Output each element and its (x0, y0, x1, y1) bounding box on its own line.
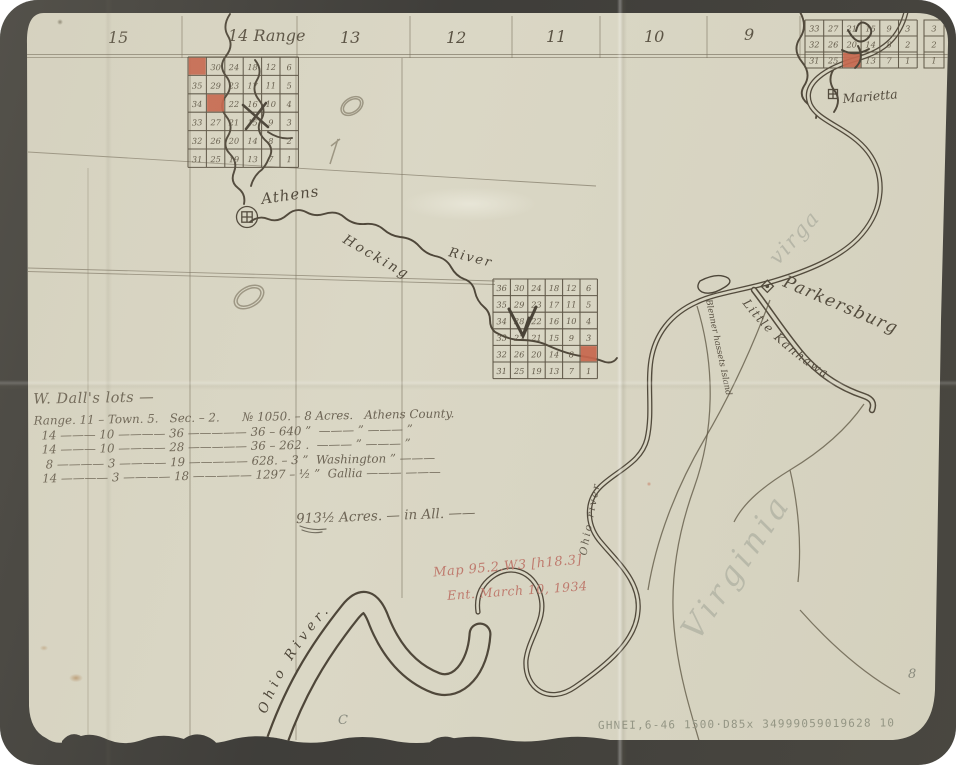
section-number: 8 (569, 349, 574, 359)
section-number: 23 (228, 81, 240, 91)
section-number: 21 (845, 23, 857, 33)
red-marked-section (207, 95, 224, 112)
section-number: 7 (886, 56, 892, 66)
section-number: 2 (285, 136, 292, 146)
section-number: 31 (809, 55, 820, 65)
section-number: 9 (886, 24, 891, 34)
section-number: 6 (586, 283, 592, 293)
section-number: 20 (845, 39, 857, 49)
section-number: 4 (585, 316, 592, 326)
section-number: 33 (496, 333, 507, 343)
section-number: 32 (809, 39, 820, 49)
section-number: 10 (266, 99, 276, 109)
section-number: 2 (904, 39, 911, 49)
section-number: 26 (827, 39, 839, 49)
section-number: 1 (905, 55, 911, 65)
range-label-10: 10 (644, 27, 664, 46)
section-number: 16 (247, 99, 258, 109)
section-number: 30 (210, 62, 221, 72)
section-number: 12 (266, 62, 276, 72)
section-number: 14 (865, 39, 876, 49)
section-number: 34 (496, 316, 507, 326)
section-number: 34 (192, 99, 203, 109)
section-number: 14 (247, 136, 258, 146)
section-number: 1 (931, 56, 936, 66)
section-number: 19 (229, 154, 240, 164)
c-pencil-mark: C (338, 713, 348, 728)
section-number: 19 (531, 366, 542, 376)
section-number: 18 (247, 62, 258, 72)
section-number: 15 (549, 333, 560, 343)
range-label-15: 15 (108, 28, 128, 47)
section-number: 20 (228, 136, 240, 146)
section-number: 27 (827, 23, 839, 33)
section-number: 18 (549, 283, 560, 293)
section-number: 7 (268, 154, 274, 164)
section-number: 11 (566, 300, 576, 310)
section-number: 2 (930, 40, 936, 50)
dall-lots-rows: Range. 11 – Town. 5. Sec. – 2. № 1050. –… (34, 406, 456, 486)
section-number: 31 (496, 366, 507, 376)
section-number: 24 (530, 283, 542, 293)
section-number: 1 (286, 154, 292, 164)
range-label-11: 11 (546, 27, 566, 46)
section-number: 26 (209, 136, 221, 146)
section-number: 3 (905, 23, 911, 33)
section-number: 13 (247, 154, 258, 164)
section-number: 10 (566, 316, 576, 326)
section-number: 30 (514, 283, 525, 293)
section-number: 25 (827, 55, 839, 65)
section-number: 25 (513, 366, 525, 376)
section-number: 1 (586, 366, 592, 376)
section-number: 14 (549, 349, 560, 359)
section-number: 9 (569, 333, 574, 343)
section-number: 21 (530, 333, 542, 343)
section-number: 22 (228, 99, 240, 109)
section-number: 5 (286, 81, 292, 91)
section-number: 31 (192, 154, 203, 164)
section-number: 26 (513, 349, 525, 359)
section-number: 5 (586, 300, 592, 310)
section-number: 13 (865, 55, 876, 65)
section-number: 20 (530, 349, 542, 359)
section-number: 11 (266, 81, 276, 91)
page-number-mark: 8 (908, 667, 916, 682)
section-number: 8 (268, 136, 273, 146)
red-marked-section (581, 346, 597, 361)
section-number: 6 (286, 62, 292, 72)
section-number: 13 (549, 366, 560, 376)
section-number: 35 (192, 80, 203, 90)
range-label-14: 14 Range (228, 26, 305, 45)
section-number: 8 (886, 40, 891, 50)
range-label-9: 9 (744, 25, 754, 44)
catalog-number-line: GHNEI,6-46 1500·D85x 34999059019628 10 (598, 716, 895, 732)
map-artwork: 3534333231302927262524232221201918171615… (0, 0, 956, 765)
section-number: 29 (513, 299, 525, 309)
range-label-12: 12 (446, 28, 466, 47)
section-number: 21 (228, 117, 240, 127)
section-number: 33 (809, 23, 820, 33)
section-number: 3 (931, 24, 936, 34)
section-number: 25 (209, 154, 221, 164)
section-number: 24 (228, 62, 240, 72)
section-number: 33 (192, 117, 203, 127)
dall-lots-note: W. Dall's lots — Range. 11 – Town. 5. Se… (33, 384, 455, 486)
section-number: 32 (496, 349, 507, 359)
section-number: 4 (285, 99, 292, 109)
red-marked-section (189, 58, 206, 75)
section-number: 12 (566, 283, 576, 293)
range-label-13: 13 (340, 28, 360, 47)
section-number: 36 (496, 283, 507, 293)
section-number: 16 (549, 316, 560, 326)
section-number: 17 (247, 80, 259, 90)
section-number: 27 (209, 117, 221, 127)
section-number: 32 (192, 136, 203, 146)
section-number: 35 (496, 299, 507, 309)
section-number: 9 (268, 117, 273, 127)
section-number: 29 (209, 80, 221, 90)
section-number: 7 (569, 366, 575, 376)
photographed-map: 3534333231302927262524232221201918171615… (0, 0, 956, 765)
section-number: 17 (549, 299, 561, 309)
section-number: 3 (286, 117, 292, 127)
section-number: 3 (586, 333, 592, 343)
